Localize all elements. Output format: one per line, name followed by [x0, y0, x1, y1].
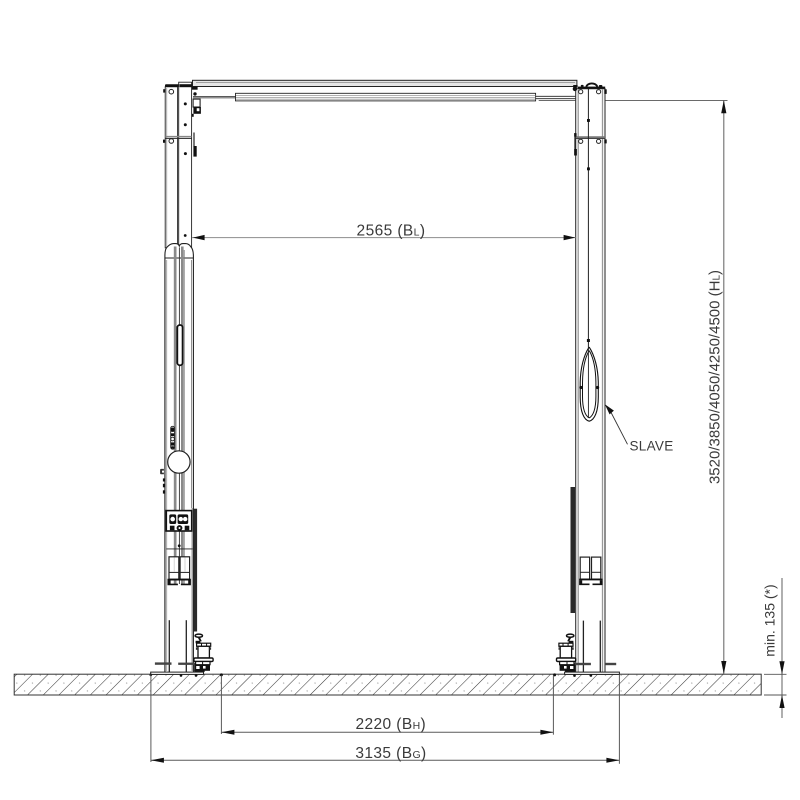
svg-text:3520/3850/4050/4250/4500 (HL): 3520/3850/4050/4250/4500 (HL): [707, 270, 724, 484]
svg-text:SLAVE: SLAVE: [630, 438, 674, 453]
svg-text:min. 135 (*): min. 135 (*): [762, 584, 778, 656]
